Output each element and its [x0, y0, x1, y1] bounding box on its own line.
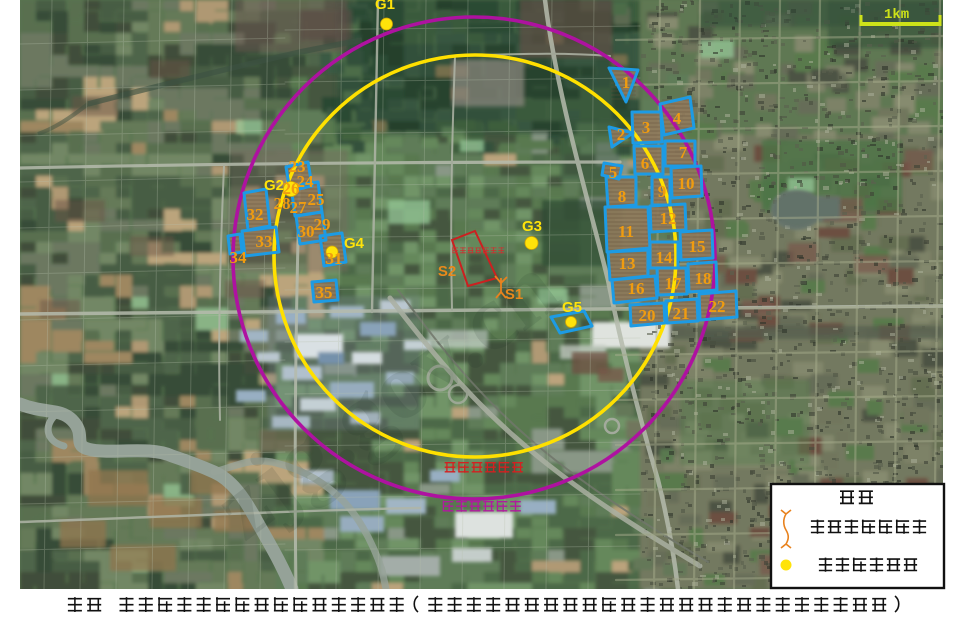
svg-text:S2: S2 — [438, 263, 456, 280]
svg-text:1km: 1km — [884, 7, 909, 23]
svg-text:11: 11 — [618, 222, 634, 241]
svg-text:17: 17 — [665, 274, 683, 293]
svg-text:18: 18 — [695, 269, 712, 288]
svg-text:G3: G3 — [522, 218, 542, 235]
svg-text:6: 6 — [641, 154, 650, 173]
svg-text:8: 8 — [618, 187, 627, 206]
svg-text:G4: G4 — [344, 235, 365, 252]
svg-text:1: 1 — [622, 73, 631, 92]
svg-text:9: 9 — [658, 182, 667, 201]
svg-text:7: 7 — [679, 143, 688, 162]
svg-text:G1: G1 — [375, 0, 395, 13]
svg-text:32: 32 — [247, 205, 264, 224]
svg-text:5: 5 — [609, 163, 618, 182]
svg-text:14: 14 — [656, 248, 674, 267]
svg-text:35: 35 — [316, 283, 333, 302]
svg-text:28: 28 — [274, 194, 291, 213]
svg-text:16: 16 — [628, 279, 645, 298]
svg-text:27: 27 — [290, 198, 308, 217]
svg-text:30: 30 — [298, 222, 315, 241]
svg-text:21: 21 — [673, 304, 690, 323]
svg-text:22: 22 — [709, 297, 726, 316]
svg-text:34: 34 — [230, 248, 248, 267]
svg-text:G2: G2 — [264, 177, 284, 194]
svg-text:S1: S1 — [505, 286, 523, 303]
svg-text:29: 29 — [314, 215, 331, 234]
svg-text:3: 3 — [642, 118, 651, 137]
svg-text:31: 31 — [326, 249, 343, 268]
svg-text:4: 4 — [673, 109, 682, 128]
svg-text:G5: G5 — [562, 299, 582, 316]
svg-text:12: 12 — [660, 209, 677, 228]
svg-text:20: 20 — [639, 306, 656, 325]
svg-text:25: 25 — [308, 190, 325, 209]
svg-text:13: 13 — [619, 254, 636, 273]
svg-text:15: 15 — [689, 237, 706, 256]
svg-text:10: 10 — [678, 174, 695, 193]
svg-text:2: 2 — [617, 125, 626, 144]
svg-text:33: 33 — [256, 232, 273, 251]
